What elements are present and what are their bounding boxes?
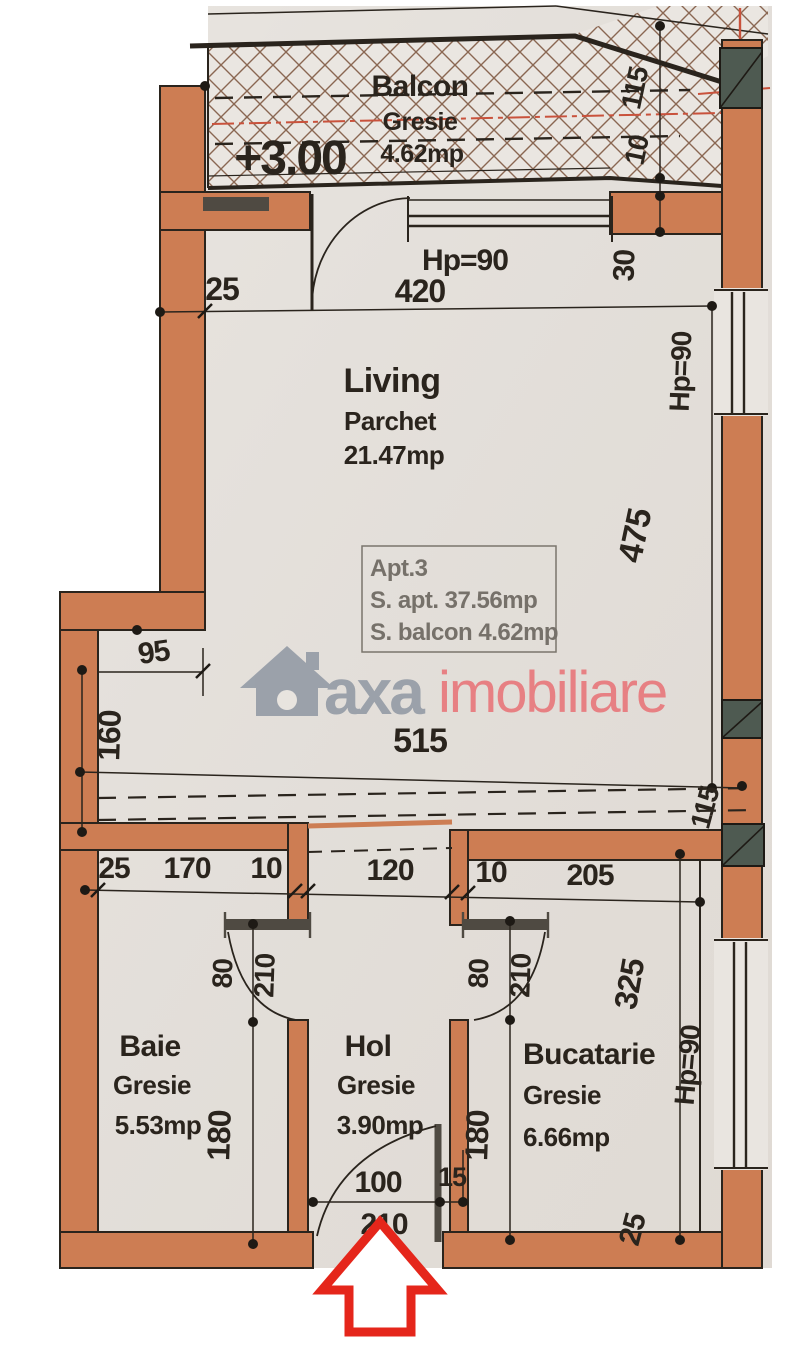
dim-step-depth: 160 xyxy=(90,710,128,762)
floor-plan: Balcon Gresie 4.62mp +3.00 115 10 Hp=90 … xyxy=(0,0,800,1354)
room-living-finish: Parchet xyxy=(344,406,437,436)
apartment-info-line3: S. balcon 4.62mp xyxy=(370,619,558,646)
dim-living-wall-left: 25 xyxy=(205,271,239,307)
wall-hol-buc-upper xyxy=(450,830,468,925)
lintel-balcony-door xyxy=(203,197,269,211)
dim-step-width: 95 xyxy=(136,634,172,671)
wall-bottom-left xyxy=(60,1232,313,1268)
dim-baie-width: 170 xyxy=(163,852,210,885)
room-bucatarie-name: Bucatarie xyxy=(523,1038,655,1071)
dim-buc-depth: 180 xyxy=(458,1110,496,1162)
dim-bucatarie-width: 205 xyxy=(566,859,613,892)
room-hol-name: Hol xyxy=(345,1030,392,1063)
watermark-brand: axa xyxy=(324,656,425,728)
room-living-area: 21.47mp xyxy=(344,440,445,470)
dim-baie-depth: 180 xyxy=(200,1110,238,1162)
dim-wall-hol-buc: 10 xyxy=(475,856,507,889)
window-living-right xyxy=(714,288,768,416)
apartment-info-line1: Apt.3 xyxy=(370,555,428,582)
room-living-name: Living xyxy=(343,362,440,400)
dim-living-window-height: Hp=90 xyxy=(664,331,698,412)
room-bucatarie-area: 6.66mp xyxy=(523,1122,610,1152)
apartment-info-line2: S. apt. 37.56mp xyxy=(370,587,537,614)
room-balcon-finish: Gresie xyxy=(383,108,458,136)
wall-rooms-top-left xyxy=(60,823,308,850)
dim-living-width: 515 xyxy=(393,722,447,760)
window-bucatarie-right xyxy=(714,938,768,1170)
wall-top-band-right xyxy=(610,192,722,234)
room-balcon-name: Balcon xyxy=(371,70,468,103)
dim-entry-jamb: 15 xyxy=(438,1162,467,1192)
wall-baie-hol-lower xyxy=(288,1020,308,1232)
level-marker: +3.00 xyxy=(234,132,346,185)
room-bucatarie-finish: Gresie xyxy=(523,1080,601,1110)
room-baie-name: Baie xyxy=(119,1030,180,1063)
room-hol-area: 3.90mp xyxy=(337,1110,424,1140)
dim-entry-door-width: 100 xyxy=(354,1166,401,1199)
wall-left-step xyxy=(60,592,205,630)
dim-wall-baie-hol: 10 xyxy=(250,852,282,885)
room-baie-area: 5.53mp xyxy=(115,1110,202,1140)
dim-chain-left-wall: 25 xyxy=(98,852,130,885)
room-baie-finish: Gresie xyxy=(113,1070,191,1100)
dim-buc-door-height: 210 xyxy=(504,953,537,998)
dim-living-opening: 420 xyxy=(395,273,446,309)
room-hol-finish: Gresie xyxy=(337,1070,415,1100)
dim-buc-door-width: 80 xyxy=(463,958,495,989)
watermark-brand-suffix: imobiliare xyxy=(438,660,666,725)
dim-baie-door-width: 80 xyxy=(207,958,239,989)
dim-baie-door-height: 210 xyxy=(248,953,281,998)
wall-left-upper xyxy=(160,86,205,592)
wall-baie-hol-upper xyxy=(288,823,308,925)
dim-living-right-offset: 30 xyxy=(607,249,641,282)
room-balcon-area: 4.62mp xyxy=(380,140,463,168)
dim-hol-width: 120 xyxy=(366,854,413,887)
